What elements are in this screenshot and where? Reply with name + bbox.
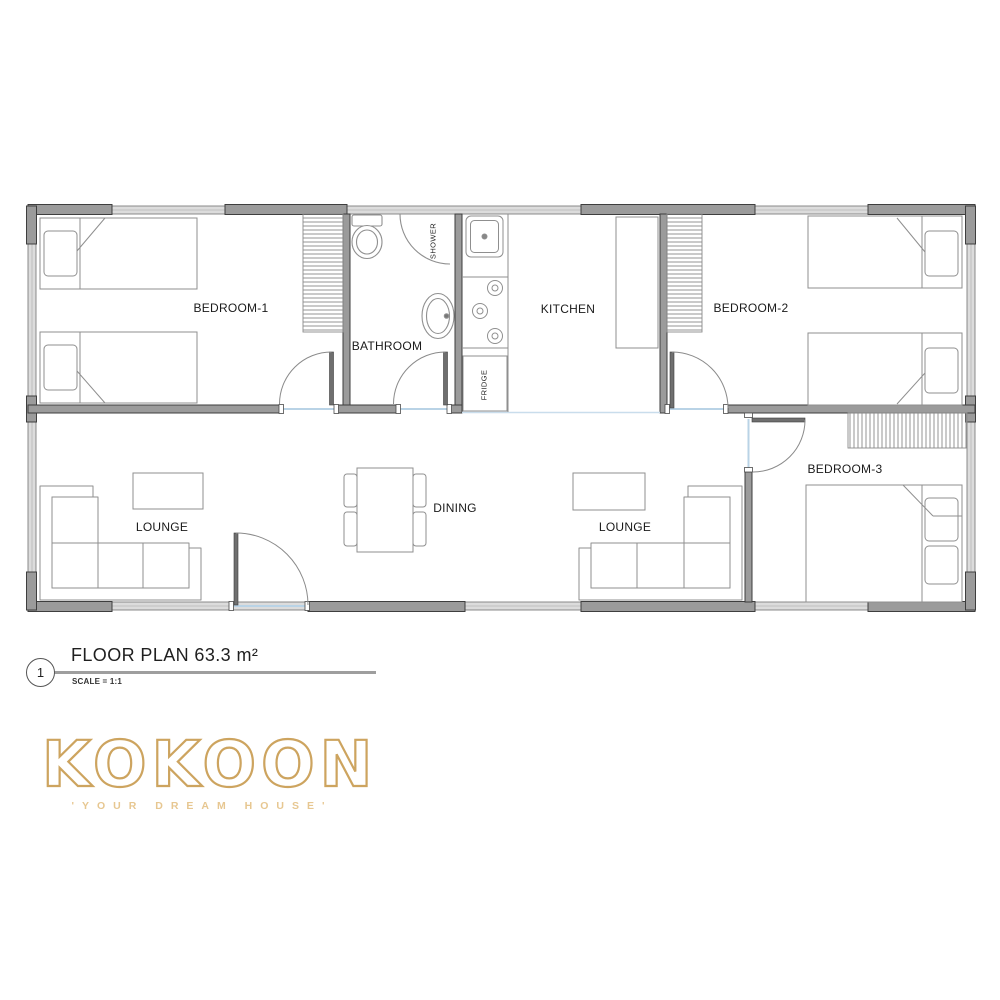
bedroom2-wardrobe-hatch bbox=[667, 214, 702, 332]
door-arc bbox=[394, 352, 446, 404]
bedroom1-furniture bbox=[40, 218, 197, 403]
kitchen-bedroom2-wall bbox=[660, 214, 667, 413]
room-label-kitchen: KITCHEN bbox=[541, 302, 595, 316]
pillow bbox=[925, 231, 958, 276]
room-label-bedroom-2: BEDROOM-2 bbox=[714, 301, 789, 315]
double-bed-icon bbox=[806, 485, 962, 602]
dining-furniture bbox=[344, 468, 426, 552]
toilet-icon bbox=[352, 215, 382, 259]
pillow bbox=[925, 498, 958, 541]
dining-chair bbox=[344, 512, 357, 546]
bathroom-right-wall bbox=[455, 214, 462, 405]
fixture-label-shower: SHOWER bbox=[429, 223, 438, 259]
door-arc bbox=[236, 533, 308, 605]
lounge2-furniture bbox=[573, 473, 742, 600]
bedroom3-left-wall bbox=[745, 472, 752, 602]
coffee-table bbox=[573, 473, 645, 510]
bedroom3-door bbox=[752, 418, 805, 472]
middle-wall bbox=[28, 405, 281, 413]
page-title: FLOOR PLAN 63.3 m² bbox=[71, 645, 258, 666]
shower-enclosure-arc bbox=[400, 214, 450, 264]
bathroom-sink-icon bbox=[422, 294, 454, 339]
title-underline bbox=[54, 671, 376, 674]
single-bed-icon bbox=[808, 216, 962, 288]
room-label-lounge-1: LOUNGE bbox=[136, 520, 188, 534]
kitchen-island bbox=[616, 217, 658, 348]
bedroom1-door bbox=[280, 352, 334, 405]
dining-chair bbox=[413, 474, 426, 507]
bedroom3-wardrobe-hatch bbox=[848, 413, 967, 448]
pillow bbox=[925, 348, 958, 393]
kitchen-sink-icon bbox=[466, 216, 503, 257]
fixture-label-fridge: FRIDGE bbox=[480, 370, 489, 401]
floor-plan-drawing bbox=[0, 0, 1000, 1000]
pillow bbox=[44, 345, 77, 390]
logo-wordmark: KOKOON bbox=[42, 732, 382, 798]
bedroom1-wardrobe-hatch bbox=[303, 214, 343, 332]
drawing-number-badge: 1 bbox=[26, 658, 55, 687]
room-label-bedroom-1: BEDROOM-1 bbox=[194, 301, 269, 315]
single-bed-icon bbox=[40, 218, 197, 289]
lounge1-furniture bbox=[40, 473, 203, 600]
pillow bbox=[44, 231, 77, 276]
bedroom2-furniture bbox=[808, 216, 962, 405]
room-label-dining: DINING bbox=[433, 501, 477, 515]
coffee-table bbox=[133, 473, 203, 509]
dining-chair bbox=[344, 474, 357, 507]
scale-note: SCALE = 1:1 bbox=[72, 677, 122, 686]
bathroom-door bbox=[394, 352, 448, 405]
bedroom2-door bbox=[670, 352, 728, 408]
page: BEDROOM-1 BATHROOM KITCHEN BEDROOM-2 BED… bbox=[0, 0, 1000, 1000]
bathroom-fixtures bbox=[352, 214, 454, 339]
dining-chair bbox=[413, 512, 426, 546]
dining-table bbox=[357, 468, 413, 552]
door-arc bbox=[280, 352, 332, 404]
single-bed-icon bbox=[808, 333, 962, 405]
entry-door bbox=[234, 533, 308, 605]
bedroom3-furniture bbox=[806, 485, 962, 602]
kokoon-logo: KOKOON 'YOUR DREAM HOUSE' bbox=[42, 732, 382, 812]
room-label-bathroom: BATHROOM bbox=[352, 339, 422, 353]
door-arc bbox=[672, 352, 728, 408]
logo-tagline: 'YOUR DREAM HOUSE' bbox=[42, 800, 362, 812]
pillow bbox=[925, 546, 958, 584]
room-label-bedroom-3: BEDROOM-3 bbox=[808, 462, 883, 476]
room-label-lounge-2: LOUNGE bbox=[599, 520, 651, 534]
door-arc bbox=[753, 420, 805, 472]
single-bed-icon bbox=[40, 332, 197, 403]
bathroom-left-wall bbox=[343, 214, 350, 405]
stove-burners-icon bbox=[473, 281, 503, 344]
